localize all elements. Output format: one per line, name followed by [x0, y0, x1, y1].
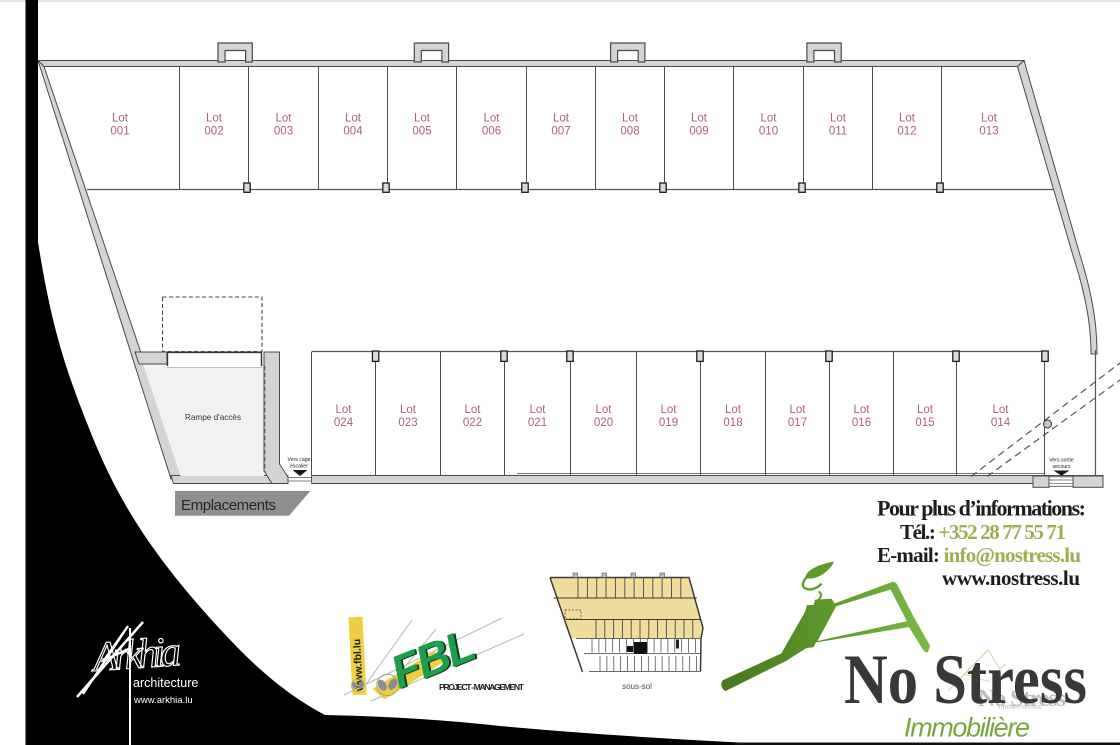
- svg-text:012: 012: [897, 126, 916, 138]
- svg-text:010: 010: [759, 126, 778, 138]
- svg-text:016: 016: [852, 417, 871, 429]
- svg-text:No Stress: No Stress: [844, 641, 1087, 719]
- svg-text:Lot: Lot: [854, 404, 871, 416]
- svg-text:008: 008: [620, 126, 639, 138]
- svg-text:Vers sortie: Vers sortie: [1049, 458, 1074, 464]
- svg-text:Lot: Lot: [206, 113, 223, 125]
- svg-text:Lot: Lot: [530, 404, 547, 416]
- svg-text:015: 015: [915, 417, 934, 429]
- svg-text:Vers cage: Vers cage: [287, 457, 310, 463]
- svg-text:architecture: architecture: [133, 676, 198, 690]
- svg-text:Lot: Lot: [981, 113, 998, 125]
- svg-text:Lot: Lot: [622, 113, 639, 125]
- svg-text:Lot: Lot: [917, 404, 934, 416]
- svg-text:Lot: Lot: [993, 404, 1010, 416]
- svg-text:Lot: Lot: [661, 404, 678, 416]
- svg-text:024: 024: [334, 417, 354, 429]
- svg-text:Lot: Lot: [112, 113, 129, 125]
- svg-text:019: 019: [659, 417, 678, 429]
- svg-text:013: 013: [979, 126, 998, 138]
- svg-text:Lot: Lot: [790, 404, 807, 416]
- svg-text:017: 017: [788, 417, 807, 429]
- svg-text:Lot: Lot: [691, 113, 708, 125]
- svg-text:Lot: Lot: [465, 404, 482, 416]
- svg-text:Lot: Lot: [400, 404, 417, 416]
- svg-text:secours: secours: [1052, 464, 1071, 470]
- svg-text:020: 020: [594, 417, 613, 429]
- svg-text:Lot: Lot: [899, 113, 916, 125]
- svg-text:Immobilière: Immobilière: [904, 713, 1030, 743]
- svg-text:Lot: Lot: [414, 113, 431, 125]
- svg-text:014: 014: [991, 417, 1011, 429]
- svg-text:www.arkhia.lu: www.arkhia.lu: [133, 695, 193, 706]
- svg-text:Lot: Lot: [830, 113, 847, 125]
- svg-text:009: 009: [689, 126, 708, 138]
- svg-text:E-mail: info@nostress.lu: E-mail: info@nostress.lu: [877, 543, 1081, 567]
- svg-text:Lot: Lot: [553, 113, 570, 125]
- svg-text:Lot: Lot: [596, 404, 613, 416]
- svg-text:Emplacements: Emplacements: [181, 497, 276, 514]
- svg-text:Lot: Lot: [345, 113, 362, 125]
- svg-text:005: 005: [412, 126, 431, 138]
- svg-text:011: 011: [829, 126, 847, 138]
- svg-text:PROJECT - MANAGEMENT: PROJECT - MANAGEMENT: [439, 682, 525, 692]
- svg-text:018: 018: [723, 417, 742, 429]
- svg-text:Lot: Lot: [276, 113, 293, 125]
- svg-text:Lot: Lot: [761, 113, 778, 125]
- svg-text:Lot: Lot: [725, 404, 742, 416]
- svg-text:Lot: Lot: [484, 113, 501, 125]
- svg-text:006: 006: [482, 126, 501, 138]
- svg-text:003: 003: [274, 126, 293, 138]
- svg-text:002: 002: [204, 126, 223, 138]
- svg-text:001: 001: [110, 126, 129, 138]
- svg-text:021: 021: [528, 417, 547, 429]
- svg-text:004: 004: [343, 126, 363, 138]
- svg-text:www.nostress.lu: www.nostress.lu: [942, 566, 1080, 590]
- svg-text:Rampe d'accès: Rampe d'accès: [185, 413, 241, 422]
- svg-text:007: 007: [551, 126, 570, 138]
- svg-text:Arkhia: Arkhia: [88, 629, 182, 681]
- svg-text:escalier: escalier: [290, 464, 308, 470]
- svg-text:023: 023: [398, 417, 417, 429]
- svg-text:sous-sol: sous-sol: [622, 682, 652, 691]
- svg-text:Lot: Lot: [336, 404, 353, 416]
- svg-text:022: 022: [463, 417, 482, 429]
- svg-text:Pour plus d’informations:: Pour plus d’informations:: [877, 496, 1086, 521]
- svg-text:Tél.: +352 28 77 55 71: Tél.: +352 28 77 55 71: [900, 520, 1066, 544]
